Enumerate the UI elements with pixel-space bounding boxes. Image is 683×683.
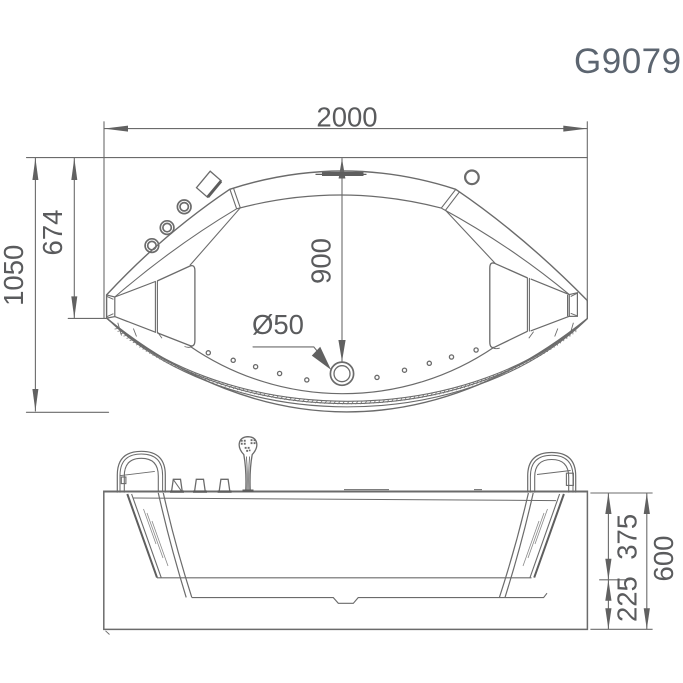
svg-text:Ø50: Ø50 [252, 309, 304, 340]
svg-text:600: 600 [648, 536, 679, 582]
svg-text:2000: 2000 [316, 102, 377, 133]
svg-text:225: 225 [612, 576, 643, 622]
svg-text:1050: 1050 [0, 245, 29, 306]
svg-text:375: 375 [612, 514, 643, 560]
svg-text:900: 900 [306, 238, 337, 284]
svg-text:G9079: G9079 [574, 42, 682, 81]
svg-text:674: 674 [37, 210, 68, 256]
